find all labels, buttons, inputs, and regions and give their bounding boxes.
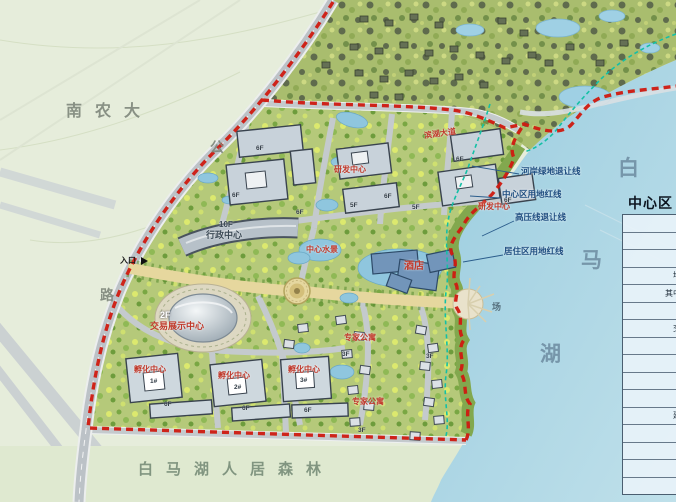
unit-tag: 2# xyxy=(234,385,241,392)
table-row: 交易展示中心 xyxy=(623,320,676,338)
expo-center-floor: 2F xyxy=(160,311,171,320)
table-row: 机动车位 xyxy=(623,478,676,495)
admin-center-label: 行政中心 xyxy=(206,231,242,240)
floor-tag: 5F xyxy=(350,203,358,210)
floor-tag: 3F xyxy=(342,352,350,359)
indicator-table: 名称 规划总用地 总建筑面积 地上建筑面积 其中：行政中心 会展中心 交易展示中… xyxy=(622,214,676,495)
expert-apartment-1-label: 专家公寓 xyxy=(344,334,376,342)
unit-tag: 3# xyxy=(300,378,307,385)
hotel-label: 酒店 xyxy=(404,262,424,272)
table-row: 孵化中心 xyxy=(623,390,676,408)
unit-tag: 1# xyxy=(150,379,157,386)
floor-tag: 6F xyxy=(242,406,250,413)
expert-apartment-2-label: 专家公寓 xyxy=(352,398,384,406)
setback-label-riverbank: 河岸绿地退让线 xyxy=(521,167,581,176)
setback-label-center-redline: 中心区用地红线 xyxy=(502,190,562,199)
table-row: 建筑占地面积 xyxy=(623,408,676,426)
table-row: 会展中心 xyxy=(623,303,676,321)
floor-tag: 3F xyxy=(426,354,434,361)
table-row: 研发中心 xyxy=(623,338,676,356)
plaza-char-label: 场 xyxy=(492,303,501,312)
floor-tag: 6F xyxy=(456,157,464,164)
setback-label-residential: 居住区用地红线 xyxy=(504,247,564,256)
expo-center-label: 交易展示中心 xyxy=(150,322,204,331)
floor-tag: 5F xyxy=(412,205,420,212)
table-row: 配套公建 xyxy=(623,373,676,391)
indicator-table-title: 中心区 xyxy=(628,196,673,210)
incubator-3-label: 孵化中心 xyxy=(288,366,320,374)
rd-center-1-label: 研发中心 xyxy=(334,166,366,174)
lake-name-char-3: 湖 xyxy=(540,344,561,365)
floor-tag: 6F xyxy=(256,146,264,153)
table-row: 其中：行政中心 xyxy=(623,285,676,303)
table-row: 地上建筑面积 xyxy=(623,268,676,286)
table-row: 总建筑面积 xyxy=(623,250,676,268)
master-plan-map: 南农大 公 路 白 马 湖 白马湖人居森林 入口 10F 行政中心 2F 交易展… xyxy=(0,0,676,502)
central-waterscape-label: 中心水景 xyxy=(306,246,338,254)
table-row: 绿地率 xyxy=(623,460,676,478)
incubator-2-label: 孵化中心 xyxy=(218,372,250,380)
admin-center-floor: 10F xyxy=(219,221,233,229)
table-row: 规划总用地 xyxy=(623,233,676,251)
floor-tag: 3F xyxy=(358,428,366,435)
table-row: 名称 xyxy=(623,215,676,233)
forest-label: 白马湖人居森林 xyxy=(138,462,334,477)
floor-tag: 6F xyxy=(304,408,312,415)
floor-tag: 6F xyxy=(384,194,392,201)
floor-tag: 6F xyxy=(296,210,304,217)
entrance-label: 入口 xyxy=(120,257,136,265)
table-row: 酒店 xyxy=(623,355,676,373)
lake-name-char-1: 白 xyxy=(618,158,639,179)
map-artwork xyxy=(0,0,676,502)
setback-label-high-voltage: 高压线退让线 xyxy=(515,213,566,222)
road-name-char-1: 公 xyxy=(210,140,224,154)
incubator-1-label: 孵化中心 xyxy=(134,366,166,374)
table-row: 容积率 xyxy=(623,425,676,443)
floor-tag: 6F xyxy=(164,402,172,409)
entrance-arrow-icon xyxy=(141,257,148,265)
road-name-char-2: 路 xyxy=(100,288,114,302)
campus-label: 南农大 xyxy=(66,104,153,120)
table-row: 建筑密度 xyxy=(623,443,676,461)
lake-name-char-2: 马 xyxy=(581,250,602,271)
floor-tag: 6F xyxy=(232,193,240,200)
